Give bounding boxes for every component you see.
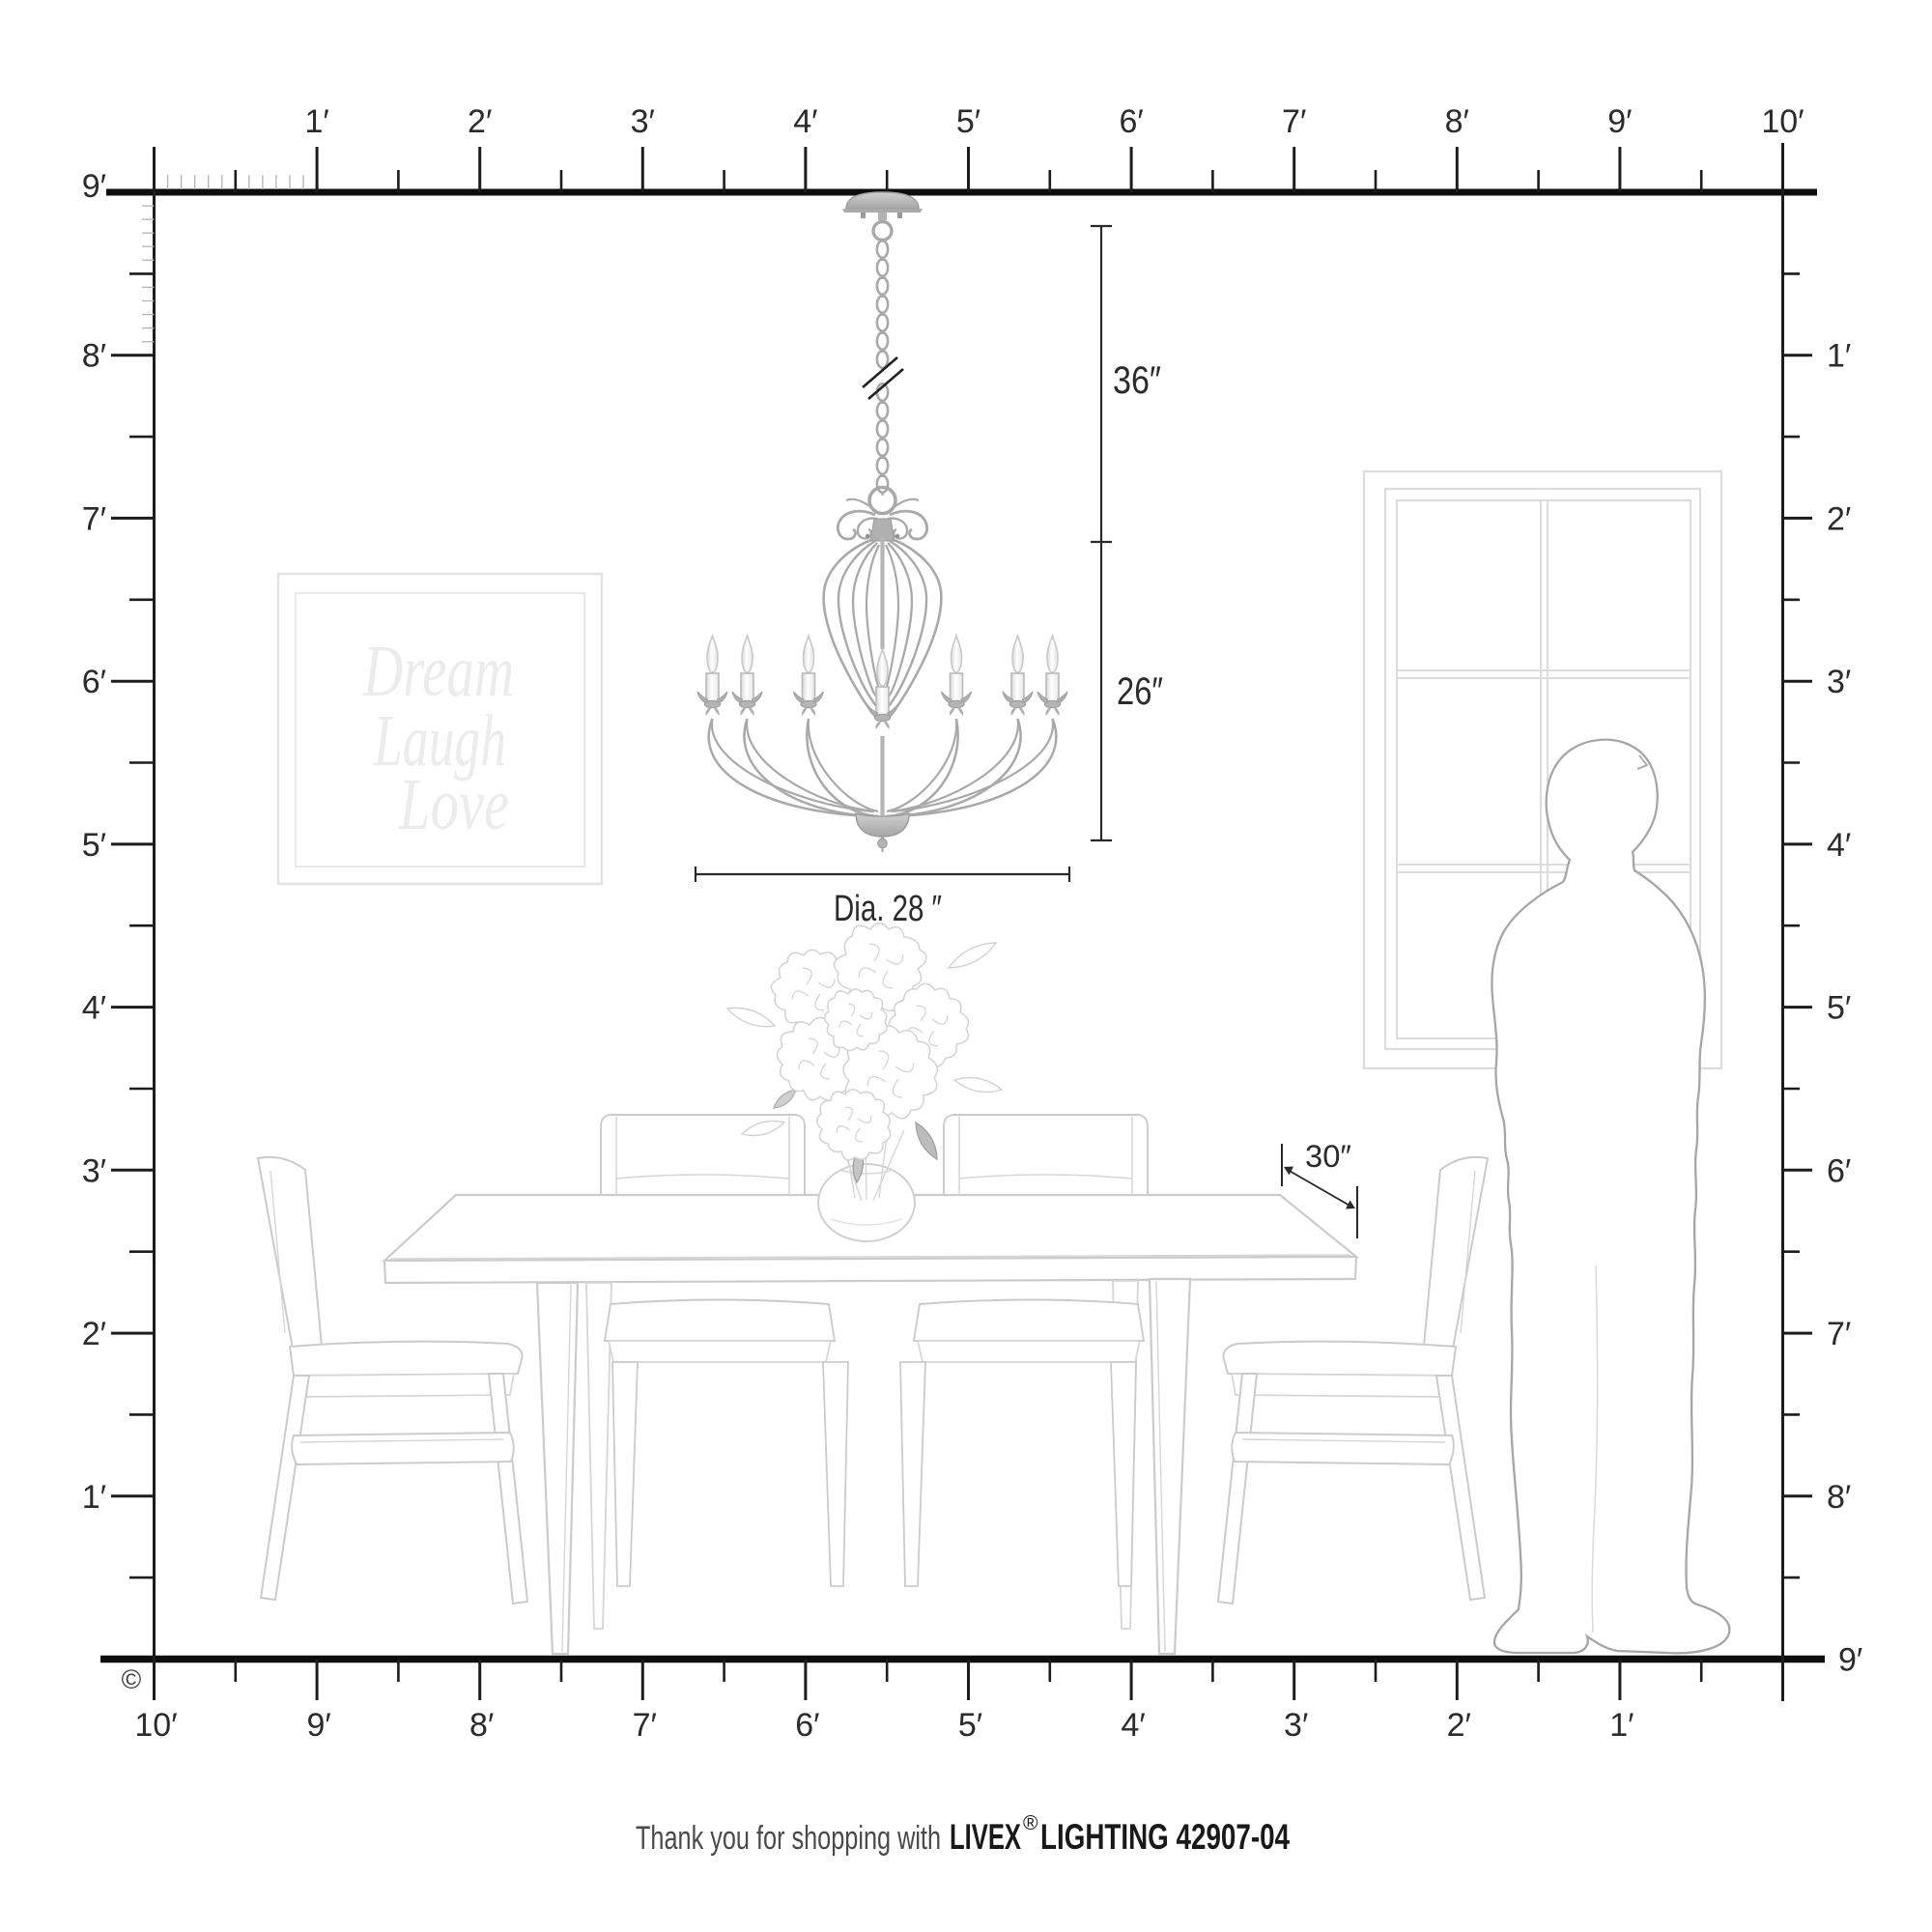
svg-text:9′: 9′ — [306, 1707, 330, 1744]
svg-text:30″: 30″ — [1305, 1139, 1351, 1174]
svg-text:©: © — [122, 1664, 142, 1694]
svg-text:5′: 5′ — [956, 103, 980, 140]
svg-text:7′: 7′ — [1827, 1316, 1851, 1352]
svg-text:5′: 5′ — [82, 827, 106, 864]
svg-text:3′: 3′ — [82, 1152, 106, 1189]
svg-text:1′: 1′ — [1827, 338, 1851, 375]
svg-text:9′: 9′ — [1838, 1642, 1862, 1679]
svg-text:2′: 2′ — [468, 103, 492, 140]
svg-text:10′: 10′ — [1761, 103, 1804, 140]
svg-text:1′: 1′ — [82, 1479, 106, 1516]
svg-text:4′: 4′ — [1121, 1707, 1145, 1744]
svg-text:6′: 6′ — [82, 664, 106, 700]
svg-text:2′: 2′ — [82, 1316, 106, 1352]
svg-text:5′: 5′ — [1827, 990, 1851, 1027]
svg-text:8′: 8′ — [1445, 103, 1469, 140]
svg-text:6′: 6′ — [1827, 1152, 1851, 1189]
svg-text:8′: 8′ — [82, 338, 106, 375]
svg-text:7′: 7′ — [633, 1707, 657, 1744]
svg-text:Dia. 28 ″: Dia. 28 ″ — [834, 889, 942, 929]
svg-text:1′: 1′ — [304, 103, 328, 140]
svg-text:6′: 6′ — [1119, 103, 1143, 140]
svg-text:6′: 6′ — [795, 1707, 819, 1744]
svg-text:®: ® — [1023, 1812, 1038, 1834]
svg-text:8′: 8′ — [469, 1707, 494, 1744]
svg-text:3′: 3′ — [631, 103, 655, 140]
svg-text:LIVEX: LIVEX — [950, 1817, 1021, 1857]
svg-text:7′: 7′ — [82, 500, 106, 537]
svg-text:7′: 7′ — [1282, 103, 1306, 140]
svg-text:10′: 10′ — [134, 1707, 177, 1744]
svg-text:8′: 8′ — [1827, 1479, 1851, 1516]
svg-text:2′: 2′ — [1447, 1707, 1471, 1744]
svg-text:9′: 9′ — [1607, 103, 1632, 140]
svg-text:3′: 3′ — [1284, 1707, 1308, 1744]
svg-text:3′: 3′ — [1827, 664, 1851, 700]
svg-text:1′: 1′ — [1609, 1707, 1634, 1744]
svg-text:Love: Love — [398, 764, 509, 845]
svg-text:26″: 26″ — [1117, 670, 1163, 713]
svg-text:5′: 5′ — [958, 1707, 982, 1744]
svg-text:2′: 2′ — [1827, 500, 1851, 537]
svg-text:4′: 4′ — [1827, 827, 1851, 864]
svg-text:4′: 4′ — [82, 990, 106, 1027]
svg-text:Thank you for shopping with: Thank you for shopping with — [636, 1820, 941, 1857]
svg-text:4′: 4′ — [793, 103, 817, 140]
svg-text:36″: 36″ — [1113, 359, 1161, 402]
svg-text:LIGHTING 42907-04: LIGHTING 42907-04 — [1040, 1817, 1290, 1857]
svg-text:9′: 9′ — [82, 168, 106, 205]
